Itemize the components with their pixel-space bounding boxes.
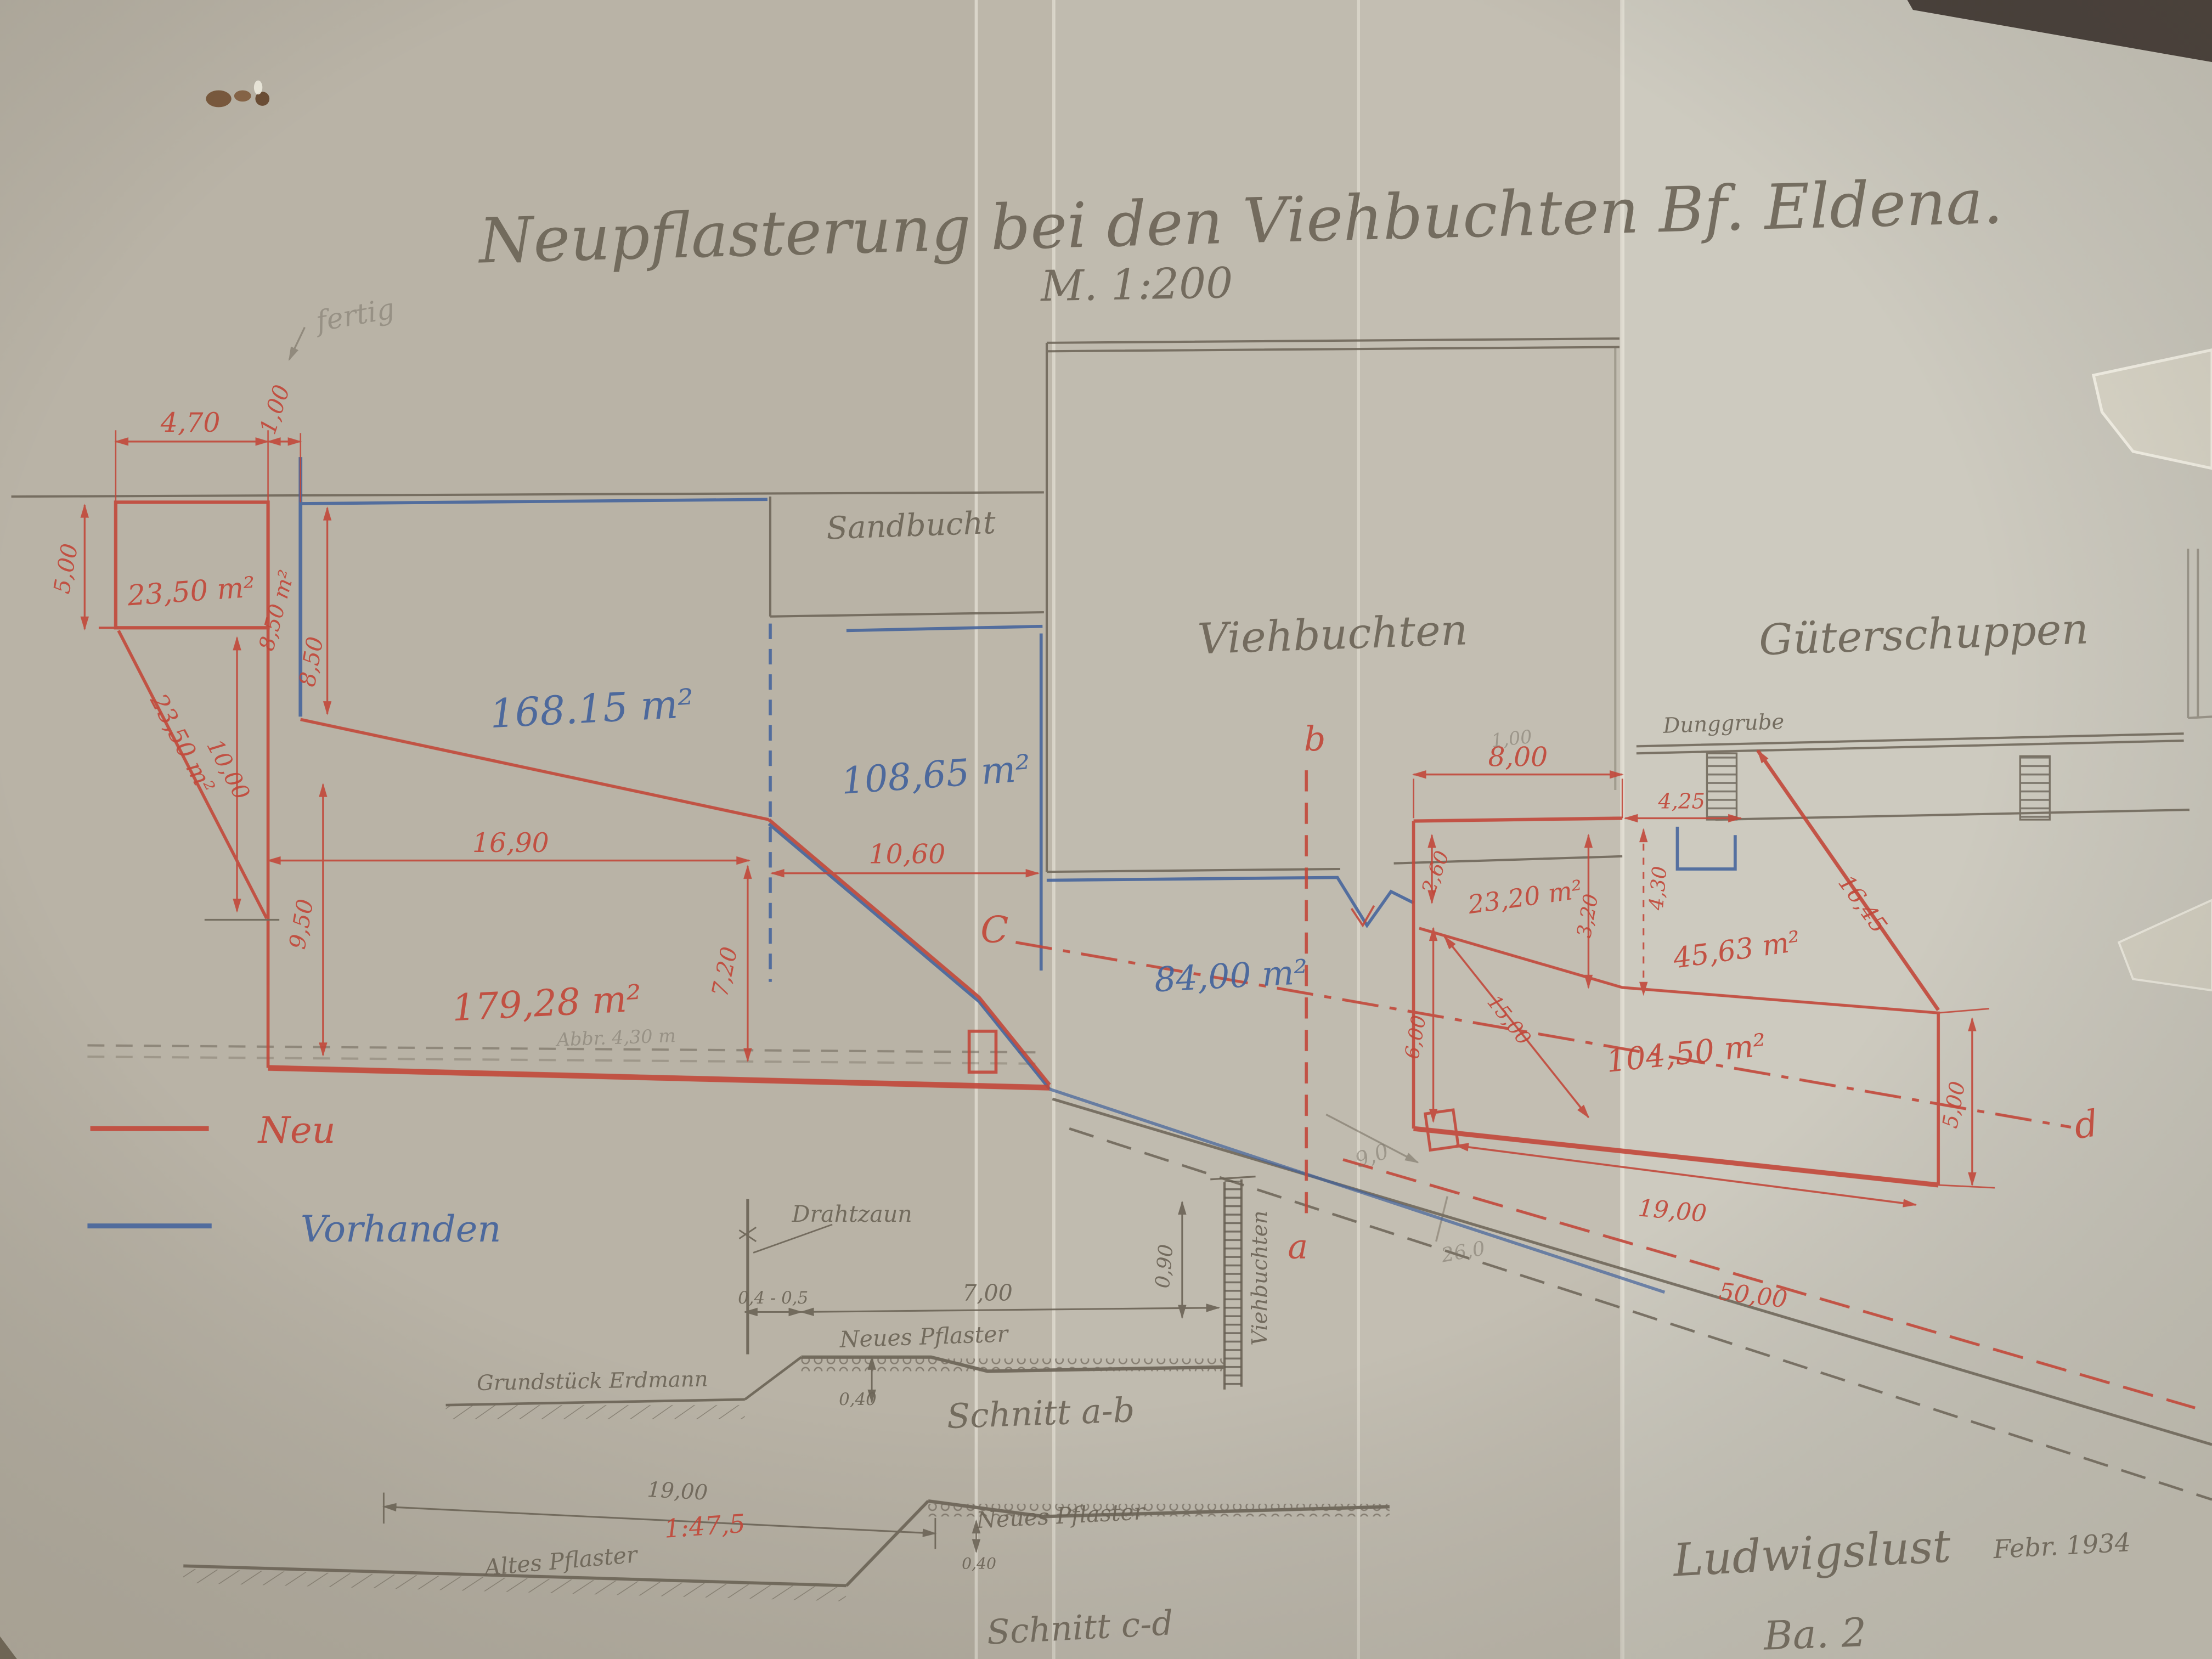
legend-neu-label: Neu <box>257 1109 336 1152</box>
pencil-note-100: 1,00 <box>1490 726 1533 752</box>
ground-hatch <box>446 1405 745 1419</box>
drawing-sheet: Neupflasterung bei den Viehbuchten Bf. E… <box>0 0 2212 1659</box>
ab-title: Schnitt a-b <box>946 1390 1136 1436</box>
legend-vorhanden-label: Vorhanden <box>301 1207 501 1250</box>
cd-dim-040: 0,40 <box>962 1554 996 1572</box>
dim-1900: 19,00 <box>1637 1194 1708 1228</box>
marker-b: b <box>1304 719 1326 759</box>
sheet-scale: M. 1:200 <box>1039 258 1233 311</box>
dim-430: 4,30 <box>1645 865 1672 911</box>
label-viehbuchten: Viehbuchten <box>1197 605 1468 664</box>
wall-hatch <box>1224 1181 1242 1388</box>
pencil-note-abbr: Abbr. 4,30 m <box>555 1025 676 1051</box>
cd-dim-1900: 19,00 <box>647 1477 709 1505</box>
dock-post-hatch <box>1707 753 1736 820</box>
dim-470: 4,70 <box>160 407 221 438</box>
dock-post-hatch <box>2020 756 2050 820</box>
dim-425: 4,25 <box>1657 789 1705 814</box>
dim-1690: 16,90 <box>472 827 549 859</box>
ab-drahtzaun: Drahtzaun <box>791 1201 912 1227</box>
ab-dim-04-05: 0,4 - 0,5 <box>738 1288 808 1308</box>
label-dunggrube: Dunggrube <box>1662 709 1785 738</box>
footer-sheet: Ba. 2 <box>1762 1609 1867 1659</box>
cd-gradient: 1:47,5 <box>663 1509 746 1544</box>
label-sandbucht: Sandbucht <box>826 505 996 547</box>
ab-wall-label: Viehbuchten <box>1248 1211 1272 1346</box>
ab-grundstueck: Grundstück Erdmann <box>477 1367 708 1396</box>
ab-dim-090: 0,90 <box>1152 1243 1178 1289</box>
pavement-cobbles <box>802 1358 1224 1371</box>
dim-1060: 10,60 <box>869 839 946 870</box>
marker-a: a <box>1288 1227 1308 1267</box>
area-8400: 84,00 m² <box>1153 952 1308 1000</box>
ab-dim-700: 7,00 <box>962 1280 1013 1306</box>
ab-dim-040: 0,40 <box>839 1390 877 1409</box>
marker-c: C <box>980 909 1008 951</box>
